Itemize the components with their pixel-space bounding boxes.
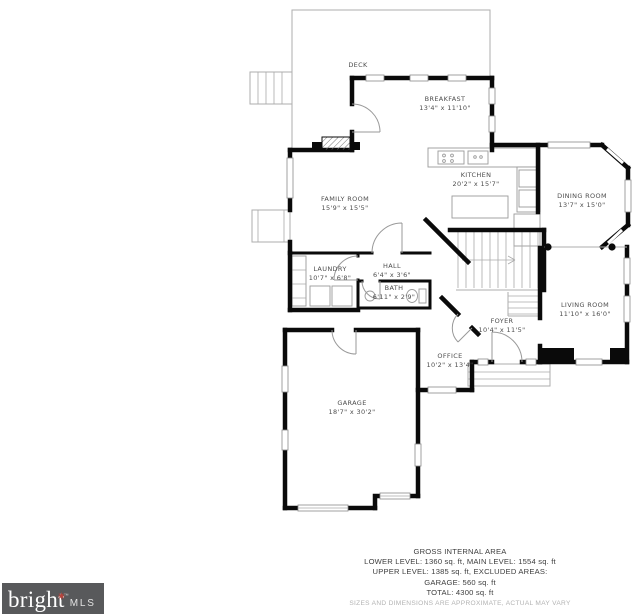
room-label-kitchen: KITCHEN20'2" x 15'7" [453, 171, 500, 188]
room-label-garage: GARAGE18'7" x 30'2" [329, 399, 376, 416]
brightmls-logo: bright ✷ ™ MLS [2, 583, 104, 614]
area-summary-line: LOWER LEVEL: 1360 sq. ft, MAIN LEVEL: 15… [320, 557, 600, 567]
area-summary-line: GARAGE: 560 sq. ft [320, 578, 600, 588]
area-summary-disclaimer: SIZES AND DIMENSIONS ARE APPROXIMATE, AC… [320, 599, 600, 609]
family-bay-window [252, 210, 290, 242]
room-label-office: OFFICE10'2" x 13'4" [427, 352, 474, 369]
area-summary-title: GROSS INTERNAL AREA [320, 547, 600, 557]
room-label-living-room: LIVING ROOM11'10" x 16'0" [559, 301, 610, 318]
area-summary-line: TOTAL: 4300 sq. ft [320, 588, 600, 598]
area-summary-line: UPPER LEVEL: 1385 sq. ft, EXCLUDED AREAS… [320, 567, 600, 577]
front-porch-steps [468, 364, 550, 386]
room-label-foyer: FOYER10'4" x 11'5" [479, 317, 526, 334]
room-label-hall: HALL6'4" x 3'6" [373, 262, 411, 279]
room-label-bath: BATH6'11" x 2'9" [373, 284, 415, 301]
room-label-laundry: LAUNDRY10'7" x 6'8" [309, 265, 351, 282]
floorplan-svg: DECKBREAKFAST13'4" x 11'10"KITCHEN20'2" … [0, 0, 634, 616]
kitchen-island [452, 196, 508, 218]
room-label-family-room: FAMILY ROOM15'9" x 15'5" [321, 195, 369, 212]
column [544, 243, 551, 250]
room-label-breakfast: BREAKFAST13'4" x 11'10" [419, 95, 470, 112]
room-label-deck: DECK [348, 61, 368, 69]
area-summary: GROSS INTERNAL AREA LOWER LEVEL: 1360 sq… [320, 547, 600, 609]
room-label-dining-room: DINING ROOM13'7" x 15'0" [557, 192, 607, 209]
column [608, 243, 615, 250]
logo-mls-text: MLS [70, 598, 96, 611]
